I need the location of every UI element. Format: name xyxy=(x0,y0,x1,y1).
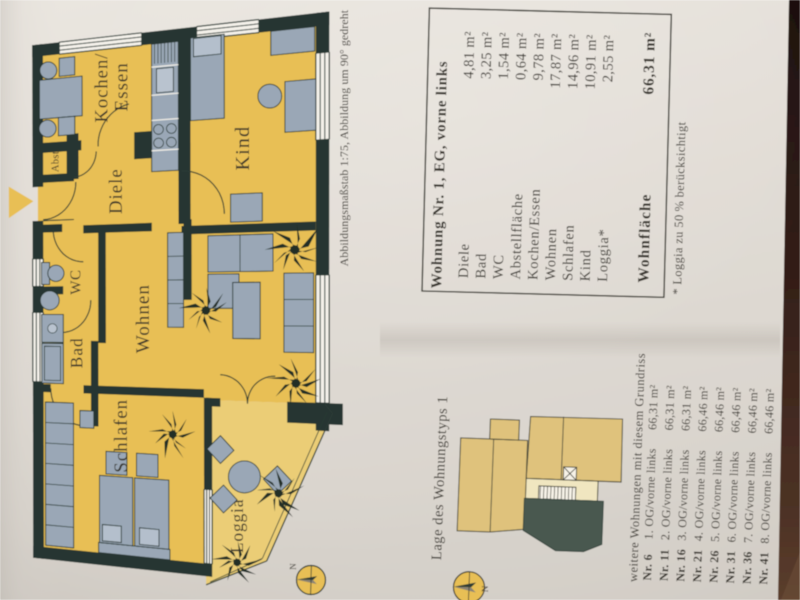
svg-text:WC: WC xyxy=(491,254,508,279)
svg-text:Kochen/Essen: Kochen/Essen xyxy=(525,188,543,280)
svg-text:Abstellfläche: Abstellfläche xyxy=(508,193,526,280)
svg-text:N: N xyxy=(480,585,490,592)
svg-text:Bad: Bad xyxy=(67,337,86,368)
svg-text:66,31 m²: 66,31 m² xyxy=(679,385,695,431)
svg-text:Diele: Diele xyxy=(456,243,473,278)
svg-text:Nr. 6: Nr. 6 xyxy=(640,554,655,581)
svg-text:9,78 m²: 9,78 m² xyxy=(531,33,548,81)
svg-text:Kind: Kind xyxy=(232,126,254,171)
svg-text:14,96 m²: 14,96 m² xyxy=(565,33,582,89)
svg-text:3,25 m²: 3,25 m² xyxy=(478,31,495,79)
svg-text:Essen: Essen xyxy=(111,62,132,111)
svg-text:10,91 m²: 10,91 m² xyxy=(583,34,600,90)
svg-text:WC: WC xyxy=(68,270,84,295)
svg-text:Wohnfläche: Wohnfläche xyxy=(635,193,654,283)
svg-text:Schlafen: Schlafen xyxy=(560,224,577,281)
svg-text:66,46 m²: 66,46 m² xyxy=(695,386,711,432)
svg-text:Wohnen: Wohnen xyxy=(543,228,560,281)
svg-text:Diele: Diele xyxy=(106,168,127,214)
svg-text:1,54 m²: 1,54 m² xyxy=(496,32,513,80)
svg-text:4,81 m²: 4,81 m² xyxy=(461,31,478,79)
svg-text:Nr. 31: Nr. 31 xyxy=(723,550,738,583)
svg-text:Schlafen: Schlafen xyxy=(111,399,132,473)
svg-text:66,46 m²: 66,46 m² xyxy=(712,387,728,433)
svg-text:Nr. 21: Nr. 21 xyxy=(690,549,705,582)
svg-text:Abbildungsmaßstab 1:75, Abbild: Abbildungsmaßstab 1:75, Abbildung um 90°… xyxy=(337,9,351,266)
svg-text:66,46 m²: 66,46 m² xyxy=(728,387,744,433)
svg-text:Loggia*: Loggia* xyxy=(595,228,612,282)
svg-text:66,31 m²: 66,31 m² xyxy=(640,32,659,95)
svg-text:Abst.: Abst. xyxy=(50,148,61,172)
svg-text:Kind: Kind xyxy=(578,249,595,281)
svg-text:Nr. 26: Nr. 26 xyxy=(706,550,721,583)
svg-text:2,55 m²: 2,55 m² xyxy=(600,34,617,82)
svg-text:Nr. 41: Nr. 41 xyxy=(756,552,771,585)
svg-text:N: N xyxy=(288,563,298,570)
svg-text:66,31 m²: 66,31 m² xyxy=(662,385,678,431)
svg-text:Loggia: Loggia xyxy=(227,499,247,553)
svg-text:66,46 m²: 66,46 m² xyxy=(761,388,777,434)
svg-text:66,46 m²: 66,46 m² xyxy=(745,388,761,434)
svg-text:17,87 m²: 17,87 m² xyxy=(548,33,565,89)
svg-text:Nr. 16: Nr. 16 xyxy=(673,549,688,582)
svg-text:0,64 m²: 0,64 m² xyxy=(513,32,530,80)
svg-text:Bad: Bad xyxy=(473,253,490,279)
svg-text:Nr. 11: Nr. 11 xyxy=(657,549,672,581)
svg-text:Kochen/: Kochen/ xyxy=(91,53,112,123)
svg-text:Nr. 36: Nr. 36 xyxy=(740,551,755,584)
svg-text:66,31 m²: 66,31 m² xyxy=(645,384,661,430)
svg-text:Wohnen: Wohnen xyxy=(133,284,154,353)
